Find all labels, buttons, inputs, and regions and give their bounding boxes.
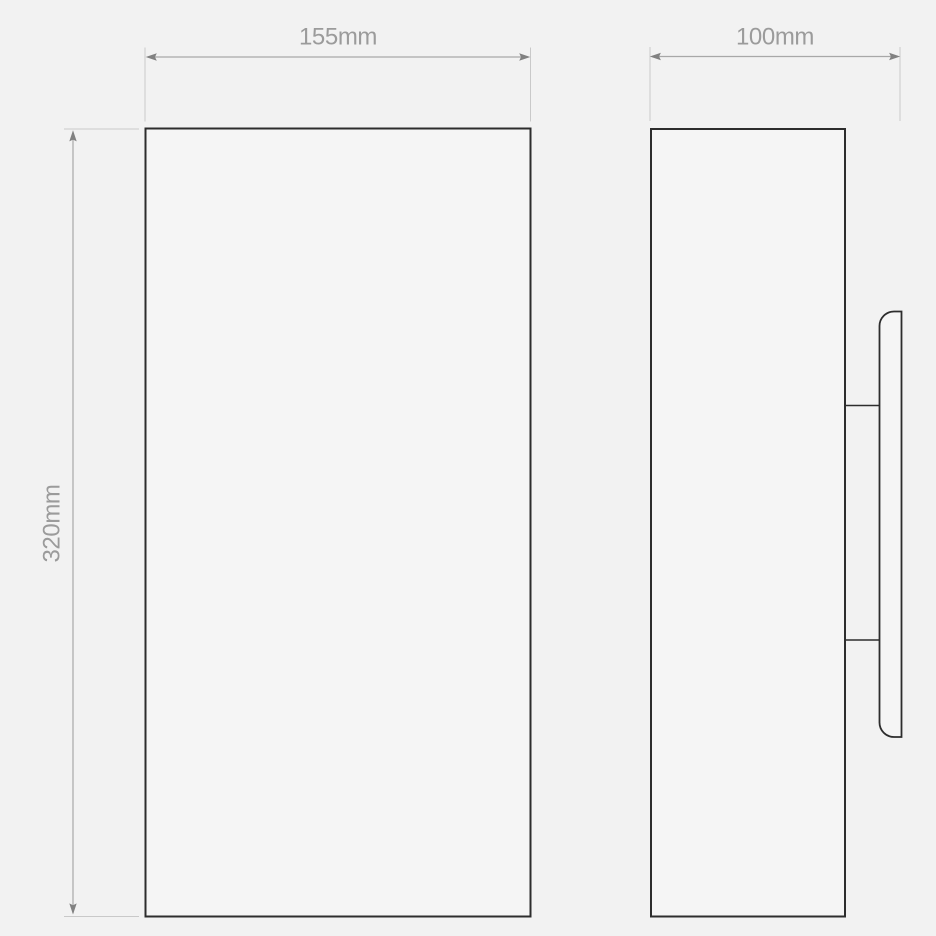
svg-text:155mm: 155mm bbox=[299, 24, 377, 51]
svg-text:100mm: 100mm bbox=[736, 24, 814, 51]
svg-text:320mm: 320mm bbox=[39, 484, 66, 562]
